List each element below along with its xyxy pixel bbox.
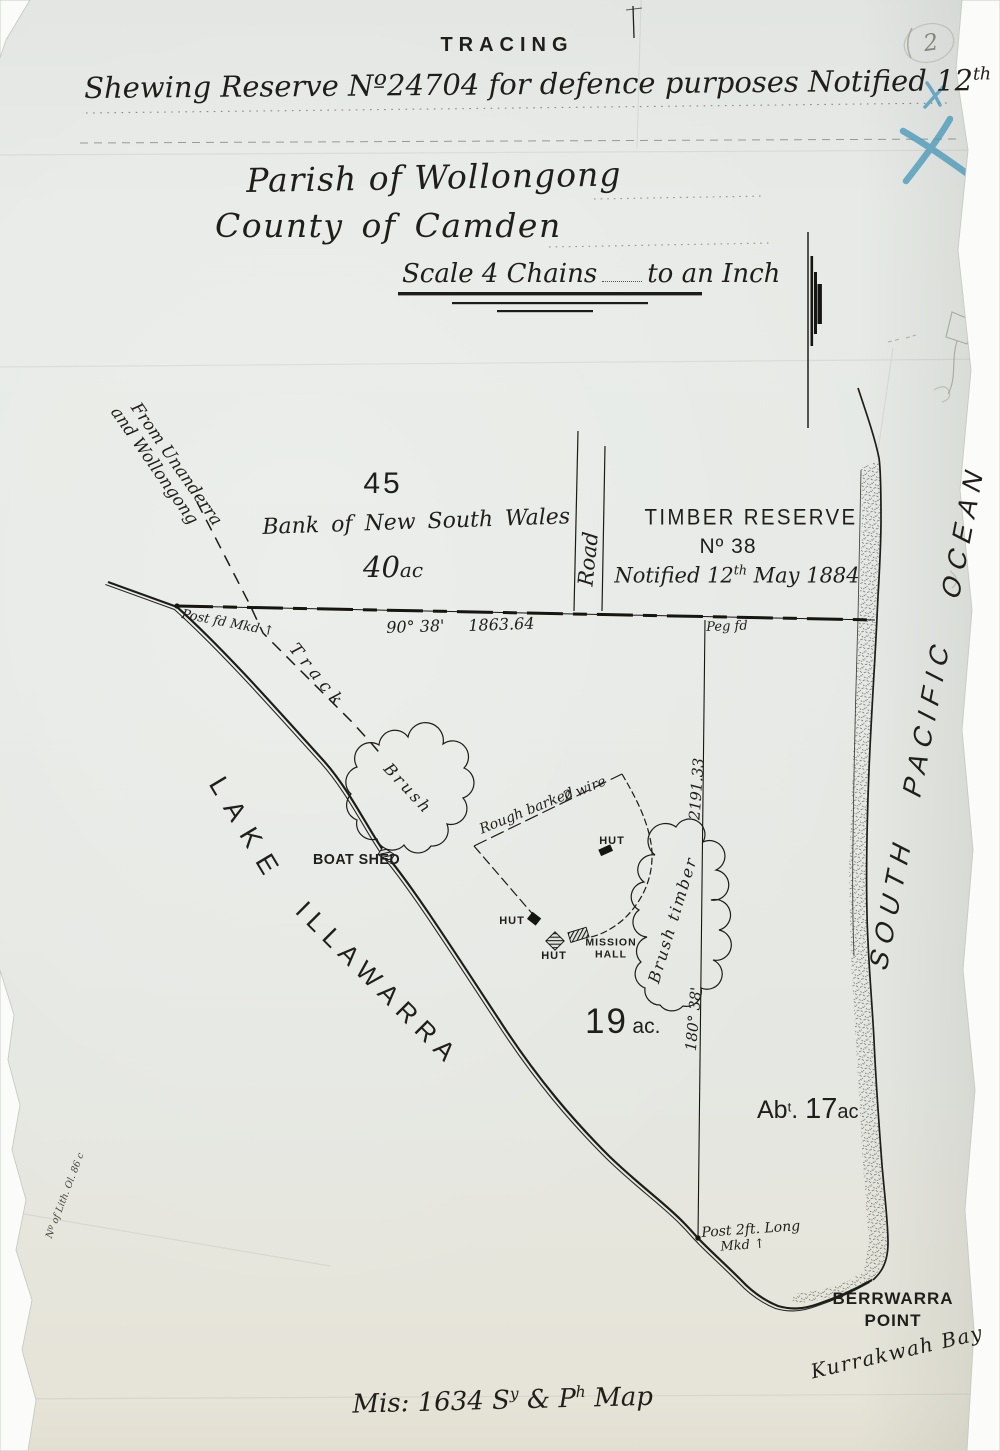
scale-statement: Scale 4 Chainsto an Inch [402,260,780,289]
north-distance: 1863.64 [468,615,535,635]
mission-hall-label: MISSION HALL [585,937,636,961]
hut-b-label: HUT [499,915,525,927]
hut-c-label: HUT [541,950,567,962]
boat-shed-label: BOAT SHED [313,852,400,869]
east-boundary-line [695,620,705,1241]
timber-reserve-name: TIMBER RESERVE [645,506,858,531]
scale-rules [398,292,702,312]
scanned-survey-tracing: TRACING Shewing Reserve Nº24704 for defe… [0,0,1000,1451]
subtitle: Shewing Reserve Nº24704 for defence purp… [84,63,1000,105]
berrwarra-point-label: BERRWARRA POINT [832,1288,953,1332]
parish-title: Parish of Wollongong [246,156,622,199]
scale-dotted-leader [602,267,642,282]
parcel-45-area: 40ac [363,551,423,583]
hut-a-label: HUT [599,835,625,847]
hut-b-building [527,912,541,926]
timber-reserve-number: Nº 38 [699,535,756,559]
hut-c-building [546,932,564,950]
parcel-45-number: 45 [363,467,402,501]
timber-reserve-notified: Notified 12th May 1884 [614,564,859,589]
lake-shoreline [105,582,872,1311]
parcel-17-area: Abt. 17ac [757,1093,859,1125]
north-bearing: 90° 38' [386,617,445,637]
peg-found-label: Peg fd [706,620,748,636]
parcel-19-area: 19 ac. [585,1002,660,1041]
page-title: TRACING [440,34,573,56]
county-title: County of Camden [215,208,562,245]
pencil-page-number: 2 [922,30,940,58]
